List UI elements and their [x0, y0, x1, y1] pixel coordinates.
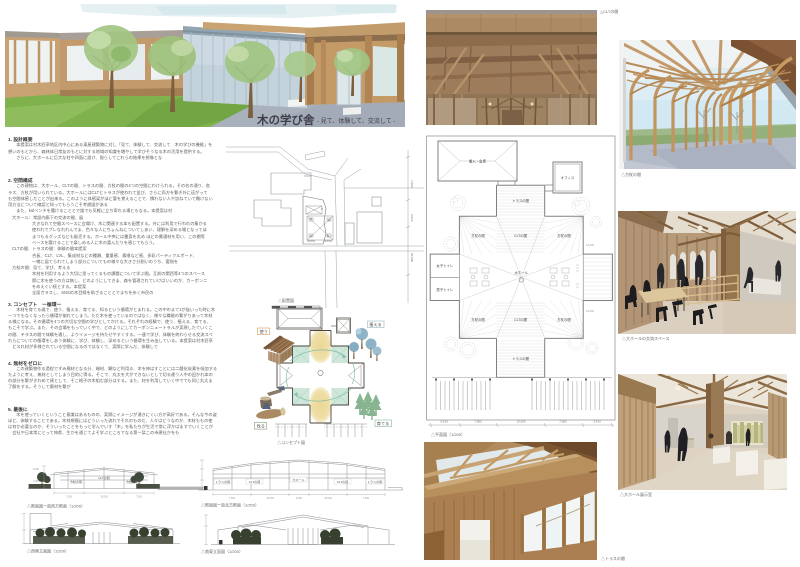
svg-text:伐る: 伐る [257, 423, 265, 429]
svg-text:15,000: 15,000 [100, 496, 108, 499]
svg-text:CLTの間: CLTの間 [514, 317, 528, 322]
svg-text:15,000: 15,000 [516, 420, 526, 424]
svg-text:9,000: 9,000 [33, 468, 40, 471]
svg-text:使う: 使う [260, 328, 268, 335]
svg-text:トラスの間: トラスの間 [512, 198, 529, 203]
svg-text:CLTの間: CLTの間 [337, 479, 348, 484]
svg-text:7,500: 7,500 [559, 420, 567, 424]
svg-text:9,000: 9,000 [296, 497, 303, 500]
svg-text:CLTの間: CLTの間 [249, 479, 260, 484]
svg-text:15,000: 15,000 [324, 497, 332, 500]
svg-text:3,410: 3,410 [440, 420, 448, 424]
svg-text:△断面図ー南西方断面（1/200）: △断面図ー南西方断面（1/200） [27, 503, 85, 509]
svg-text:男子トイレ: 男子トイレ [436, 287, 454, 292]
svg-text:植える: 植える [369, 321, 381, 328]
svg-text:育てる: 育てる [377, 420, 390, 427]
svg-text:CLTの間: CLTの間 [514, 233, 528, 238]
svg-text:7,500: 7,500 [474, 420, 482, 424]
svg-text:方杖の間: 方杖の間 [70, 479, 82, 484]
svg-text:方杖の間: 方杖の間 [126, 479, 138, 484]
svg-text:2,512: 2,512 [410, 214, 414, 222]
svg-text:女子トイレ: 女子トイレ [436, 263, 454, 268]
svg-text:方杖の間: 方杖の間 [471, 233, 485, 238]
svg-text:△南東立面図（1/200）: △南東立面図（1/200） [201, 548, 243, 554]
svg-text:CLTの間: CLTの間 [98, 475, 109, 480]
svg-text:方杖の間: 方杖の間 [471, 317, 485, 322]
svg-text:3,000: 3,000 [33, 480, 40, 483]
svg-text:7,500: 7,500 [229, 497, 236, 500]
svg-text:3,410: 3,410 [593, 420, 601, 424]
svg-text:12,000: 12,000 [586, 243, 594, 247]
svg-text:大ホール: 大ホール [515, 270, 529, 275]
svg-text:15,000: 15,000 [266, 497, 274, 500]
svg-text:△断面図ー南北方断面（1/200）: △断面図ー南北方断面（1/200） [201, 502, 259, 508]
svg-text:オフィス: オフィス [561, 175, 575, 180]
svg-text:木の学び舎: 木の学び舎 [256, 113, 315, 127]
svg-text:7,500: 7,500 [363, 497, 370, 500]
svg-text:トラスの間: トラスの間 [367, 479, 382, 484]
svg-text:トラスの間: トラスの間 [512, 356, 529, 361]
svg-text:方杖の間: 方杖の間 [557, 233, 571, 238]
svg-text:7,500: 7,500 [66, 496, 73, 499]
svg-text:トラスの間: トラスの間 [215, 479, 230, 484]
svg-text:搬入・倉庫: 搬入・倉庫 [469, 159, 487, 164]
svg-text:12,000: 12,000 [586, 309, 594, 313]
svg-text:7,500: 7,500 [410, 180, 414, 188]
svg-text:大ホール: 大ホール [292, 477, 304, 482]
svg-text:7,500: 7,500 [136, 496, 143, 499]
svg-text:△西側立面図（1/200）: △西側立面図（1/200） [27, 548, 69, 554]
svg-text:- 見て、体験して、交流して -: - 見て、体験して、交流して - [317, 117, 395, 125]
svg-text:50,000: 50,000 [410, 253, 414, 263]
svg-text:方杖の間: 方杖の間 [557, 317, 571, 322]
